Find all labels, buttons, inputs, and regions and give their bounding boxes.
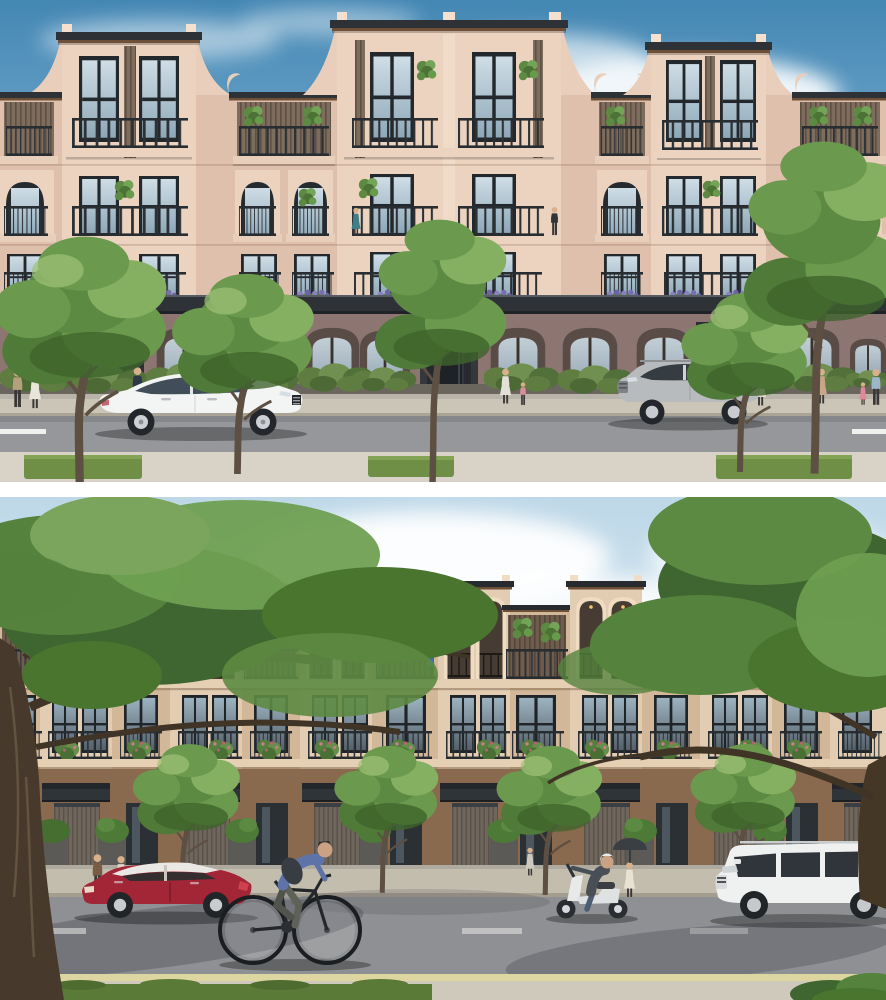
yellow-edge-line [0, 974, 886, 981]
floor-slab-line [0, 164, 886, 166]
render-collage [0, 0, 886, 1000]
panel-bottom-street-elevation [0, 497, 886, 1000]
panel-top-street-elevation [0, 0, 886, 482]
